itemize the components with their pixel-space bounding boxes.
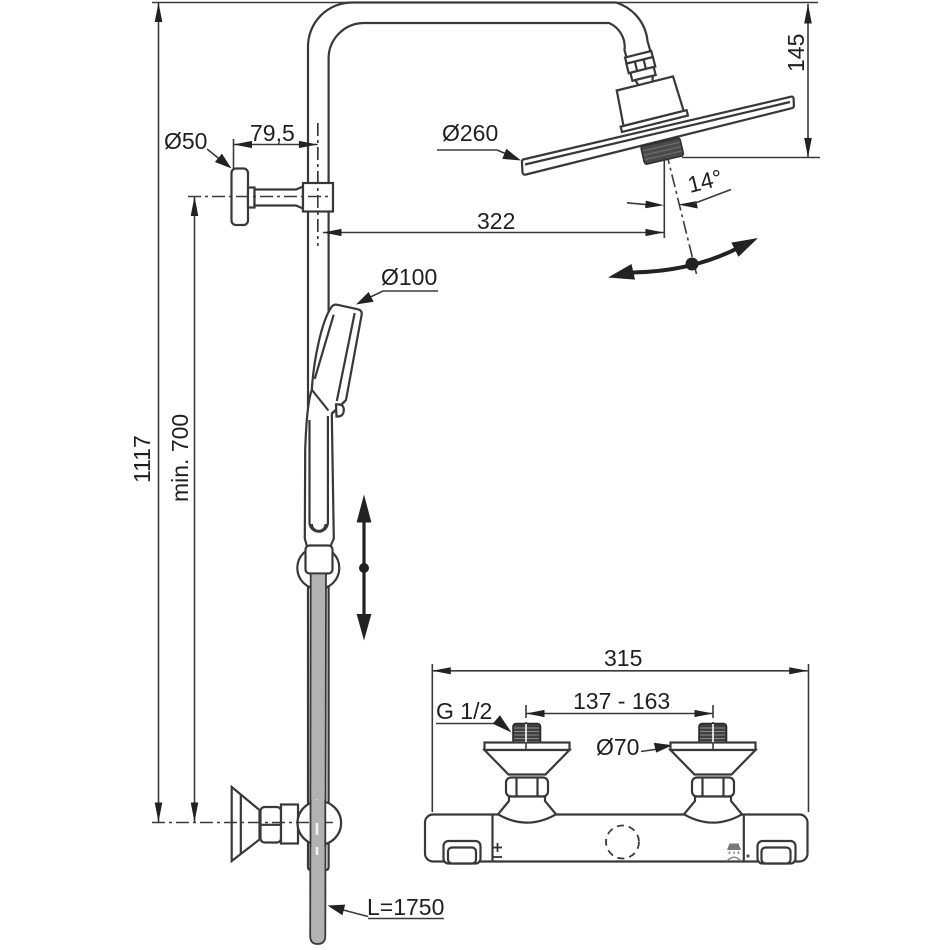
svg-text:79,5: 79,5: [250, 120, 295, 146]
svg-text:Ø100: Ø100: [381, 264, 437, 290]
svg-text:min. 700: min. 700: [167, 414, 193, 502]
svg-text:1117: 1117: [129, 435, 155, 483]
svg-text:322: 322: [477, 208, 515, 234]
svg-text:G 1/2: G 1/2: [436, 698, 492, 724]
svg-text:315: 315: [604, 645, 642, 671]
svg-text:Ø70: Ø70: [596, 734, 639, 760]
svg-text:Ø50: Ø50: [164, 128, 207, 154]
svg-text:145: 145: [783, 34, 809, 72]
svg-text:137 - 163: 137 - 163: [573, 688, 670, 714]
svg-text:Ø260: Ø260: [442, 120, 498, 146]
svg-text:L=1750: L=1750: [367, 894, 444, 920]
